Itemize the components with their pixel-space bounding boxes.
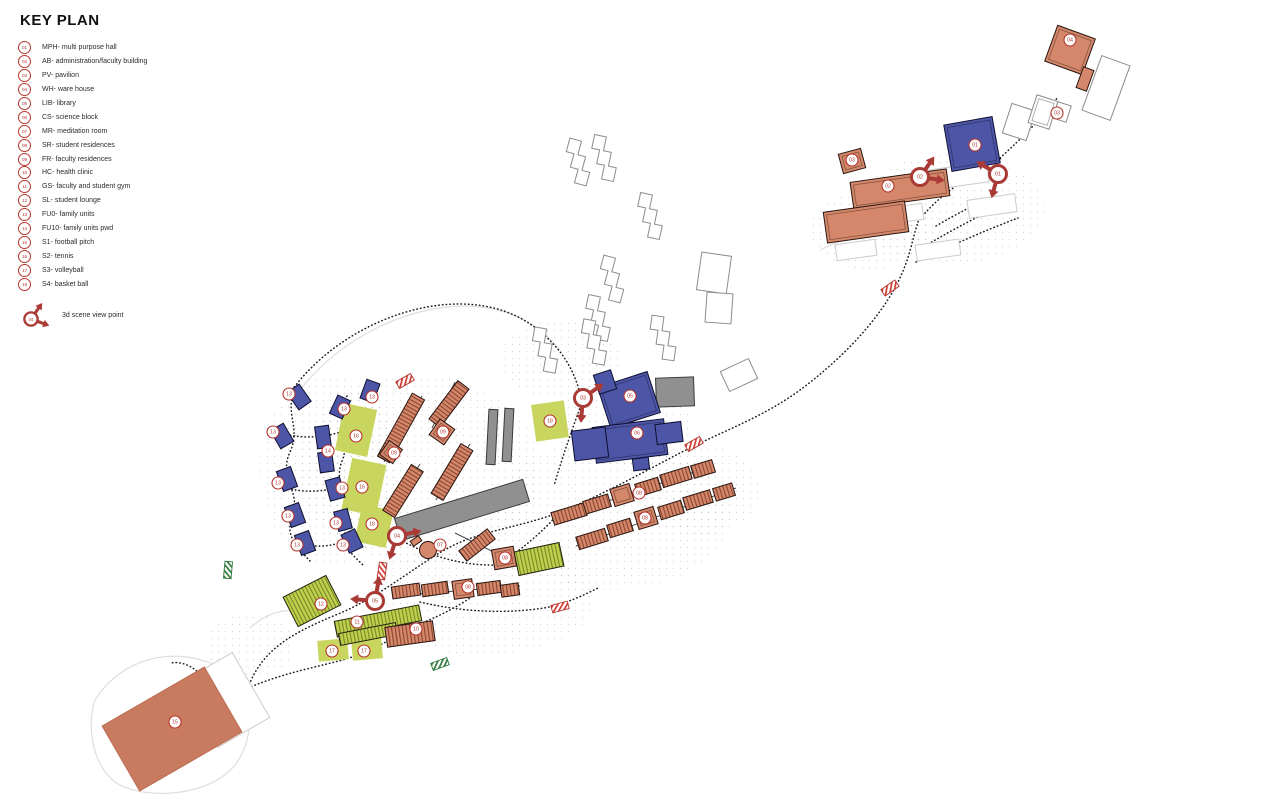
legend-item-label: S1- football pitch — [42, 239, 94, 246]
building-label-10: 10 — [410, 623, 422, 635]
building-shape — [571, 427, 608, 461]
label-number: 09 — [440, 429, 446, 435]
marker-shape — [881, 280, 899, 296]
legend-item: 12SL- student lounge — [18, 194, 147, 208]
building-label-15: 15 — [169, 716, 181, 728]
ghost-zigzag-building — [632, 193, 668, 240]
viewpoint-arrow — [350, 594, 368, 605]
building-shape — [632, 457, 649, 471]
building-label-17: 17 — [326, 645, 338, 657]
legend-item-number: 13 — [18, 208, 31, 221]
legend-viewpoint-label: 3d scene view point — [62, 312, 123, 319]
label-number: 09 — [391, 450, 397, 456]
legend-item: 13FU0- family units — [18, 208, 147, 222]
label-number: 13 — [294, 542, 300, 548]
legend-item: 04WH- ware house — [18, 83, 147, 97]
legend-item-number: 03 — [18, 69, 31, 82]
label-number: 15 — [172, 719, 178, 725]
building-science-d — [632, 457, 649, 471]
label-number: 13 — [333, 520, 339, 526]
viewpoint-symbol-icon: 04 — [18, 295, 60, 335]
legend-item-number: 09 — [18, 153, 31, 166]
building-label-13: 13 — [267, 426, 279, 438]
building-science-b — [571, 427, 608, 461]
legend-item-label: FU10- family units pwd — [42, 225, 113, 232]
label-number: 08 — [465, 584, 471, 590]
legend-item: 03PV- pavilion — [18, 69, 147, 83]
building-shape — [656, 377, 695, 407]
legend-item-number: 02 — [18, 55, 31, 68]
label-number: 18 — [547, 418, 553, 424]
legend-item: 08SR- student residences — [18, 138, 147, 152]
legend-item-label: GS- faculty and student gym — [42, 183, 130, 190]
building-label-09: 09 — [388, 447, 400, 459]
building-stu-r3-d — [500, 583, 519, 597]
label-number: 16 — [353, 433, 359, 439]
label-number: 13 — [340, 542, 346, 548]
building-label-13: 13 — [272, 477, 284, 489]
legend-item-number: 07 — [18, 125, 31, 138]
building-shape — [500, 583, 519, 597]
legend-item-number: 15 — [18, 236, 31, 249]
building-label-16: 16 — [350, 430, 362, 442]
label-number: 11 — [354, 619, 359, 625]
legend-item-number: 16 — [18, 250, 31, 263]
building-label-16: 16 — [356, 481, 368, 493]
legend-item-number: 11 — [18, 180, 31, 193]
legend-item: 18S4- basket ball — [18, 277, 147, 291]
viewpoint-number: 04 — [29, 317, 34, 322]
red-hatch-marker — [881, 280, 899, 296]
legend-item-label: PV- pavilion — [42, 72, 79, 79]
ghost-zigzag-building — [593, 255, 631, 303]
legend-item-label: S4- basket ball — [42, 281, 88, 288]
legend-item-number: 06 — [18, 111, 31, 124]
label-number: 13 — [275, 480, 281, 486]
building-shape — [1082, 56, 1130, 121]
legend-item-label: SR- student residences — [42, 142, 115, 149]
ghost-zigzag-building — [646, 315, 680, 360]
building-label-13: 13 — [366, 391, 378, 403]
label-number: 04 — [1067, 37, 1073, 43]
building-shape — [705, 292, 733, 324]
legend-item-number: 12 — [18, 194, 31, 207]
legend-item: 17S3- volleyball — [18, 263, 147, 277]
building-shape — [720, 358, 757, 391]
key-plan-canvas: 0102030405060708080808090910111213131313… — [0, 0, 1280, 800]
legend-item-number: 04 — [18, 83, 31, 96]
viewpoint-number: 05 — [372, 598, 378, 604]
label-number: 13 — [341, 406, 347, 412]
label-number: 05 — [627, 393, 633, 399]
ghost-zigzag-building — [559, 138, 597, 186]
building-shape — [697, 252, 732, 294]
label-number: 13 — [286, 391, 292, 397]
label-number: 13 — [369, 394, 375, 400]
building-student-lounge — [283, 575, 341, 626]
legend-item-label: SL- student lounge — [42, 197, 101, 204]
viewpoint-marker-04: 04 — [24, 301, 50, 330]
label-number: 13 — [270, 429, 276, 435]
legend-item-label: MPH- multi purpose hall — [42, 44, 117, 51]
building-gray-hall — [656, 377, 695, 407]
legend-item-label: FU0- family units — [42, 211, 95, 218]
label-number: 03 — [1054, 110, 1060, 116]
building-label-09: 09 — [437, 426, 449, 438]
building-label-05: 05 — [624, 390, 636, 402]
building-label-18: 18 — [366, 518, 378, 530]
legend-viewpoint-row: 04 3d scene view point — [18, 295, 147, 335]
site-plan-drawing: 0102030405060708080808090910111213131313… — [0, 0, 1280, 800]
legend-item: 01MPH- multi purpose hall — [18, 41, 147, 55]
viewpoint-number: 01 — [995, 171, 1001, 177]
label-number: 14 — [325, 448, 331, 454]
legend-item: 15S1- football pitch — [18, 235, 147, 249]
label-number: 06 — [634, 430, 640, 436]
legend-item: 11GS- faculty and student gym — [18, 180, 147, 194]
building-label-08: 08 — [639, 512, 651, 524]
label-number: 13 — [339, 485, 345, 491]
legend-item-number: 05 — [18, 97, 31, 110]
viewpoint-number: 02 — [917, 174, 923, 180]
building-label-13: 13 — [283, 388, 295, 400]
building-shape — [655, 421, 683, 444]
label-number: 17 — [361, 648, 367, 654]
legend-item-number: 01 — [18, 41, 31, 54]
building-shape — [283, 575, 341, 626]
legend-item-number: 14 — [18, 222, 31, 235]
label-number: 16 — [359, 484, 365, 490]
building-label-13: 13 — [336, 482, 348, 494]
ghost-zigzag-building — [586, 135, 622, 182]
building-label-14: 14 — [322, 445, 334, 457]
building-label-03: 03 — [1051, 107, 1063, 119]
legend-item-number: 17 — [18, 264, 31, 277]
legend-item-label: FR- faculty residences — [42, 156, 112, 163]
building-warehouse-annex — [1082, 56, 1130, 121]
building-label-06: 06 — [631, 427, 643, 439]
building-ghost-hall-b — [697, 252, 732, 294]
label-number: 12 — [318, 601, 324, 607]
legend-item-label: CS- science block — [42, 114, 98, 121]
legend-item-label: AB- administration/faculty building — [42, 58, 147, 65]
label-number: 13 — [285, 513, 291, 519]
arrow-head — [42, 320, 51, 329]
viewpoint-number: 03 — [580, 395, 586, 401]
label-number: 03 — [849, 157, 855, 163]
building-label-01: 01 — [969, 139, 981, 151]
label-number: 02 — [885, 183, 891, 189]
label-number: 08 — [502, 555, 508, 561]
green-hatch-marker — [431, 658, 450, 671]
building-ghost-hall-a — [720, 358, 757, 391]
building-label-08: 08 — [633, 487, 645, 499]
legend-item: 09FR- faculty residences — [18, 152, 147, 166]
arrow-head — [350, 594, 359, 605]
building-label-07: 07 — [434, 539, 446, 551]
label-number: 08 — [636, 490, 642, 496]
legend-item-label: S2- tennis — [42, 253, 74, 260]
legend-item-label: HC- health clinic — [42, 169, 93, 176]
label-number: 17 — [329, 648, 335, 654]
building-label-08: 08 — [499, 552, 511, 564]
legend-item-number: 18 — [18, 278, 31, 291]
building-label-03: 03 — [846, 154, 858, 166]
marker-shape — [223, 561, 232, 579]
label-number: 18 — [369, 521, 375, 527]
legend-item: 14FU10- family units pwd — [18, 222, 147, 236]
building-label-08: 08 — [462, 581, 474, 593]
legend-item: 16S2- tennis — [18, 249, 147, 263]
legend-list: 01MPH- multi purpose hall02AB- administr… — [18, 41, 147, 291]
legend-item-label: WH- ware house — [42, 86, 94, 93]
building-ghost-hall-c — [705, 292, 733, 324]
building-label-13: 13 — [337, 539, 349, 551]
legend-item-label: S3- volleyball — [42, 267, 84, 274]
label-number: 08 — [642, 515, 648, 521]
label-number: 07 — [437, 542, 443, 548]
building-label-13: 13 — [291, 539, 303, 551]
legend-item: 10HC- health clinic — [18, 166, 147, 180]
building-label-17: 17 — [358, 645, 370, 657]
legend-item-label: MR- meditation room — [42, 128, 107, 135]
legend: KEY PLAN 01MPH- multi purpose hall02AB- … — [18, 12, 147, 335]
viewpoint-number: 04 — [394, 533, 400, 539]
label-number: 10 — [413, 626, 419, 632]
label-number: 01 — [972, 142, 978, 148]
legend-item: 07MR- meditation room — [18, 124, 147, 138]
green-hatch-marker — [223, 561, 232, 579]
building-label-18: 18 — [544, 415, 556, 427]
building-label-02: 02 — [882, 180, 894, 192]
building-label-11: 11 — [351, 616, 363, 628]
building-science-c — [655, 421, 683, 444]
legend-item-label: LIB- library — [42, 100, 76, 107]
building-label-04: 04 — [1064, 34, 1076, 46]
page-title: KEY PLAN — [20, 12, 147, 29]
legend-item-number: 10 — [18, 166, 31, 179]
legend-item: 05LIB- library — [18, 97, 147, 111]
building-label-13: 13 — [338, 403, 350, 415]
building-warehouse — [1045, 25, 1096, 74]
building-label-13: 13 — [330, 517, 342, 529]
legend-item: 02AB- administration/faculty building — [18, 55, 147, 69]
building-label-13: 13 — [282, 510, 294, 522]
legend-item: 06CS- science block — [18, 110, 147, 124]
marker-shape — [431, 658, 450, 671]
building-label-12: 12 — [315, 598, 327, 610]
legend-item-number: 08 — [18, 139, 31, 152]
